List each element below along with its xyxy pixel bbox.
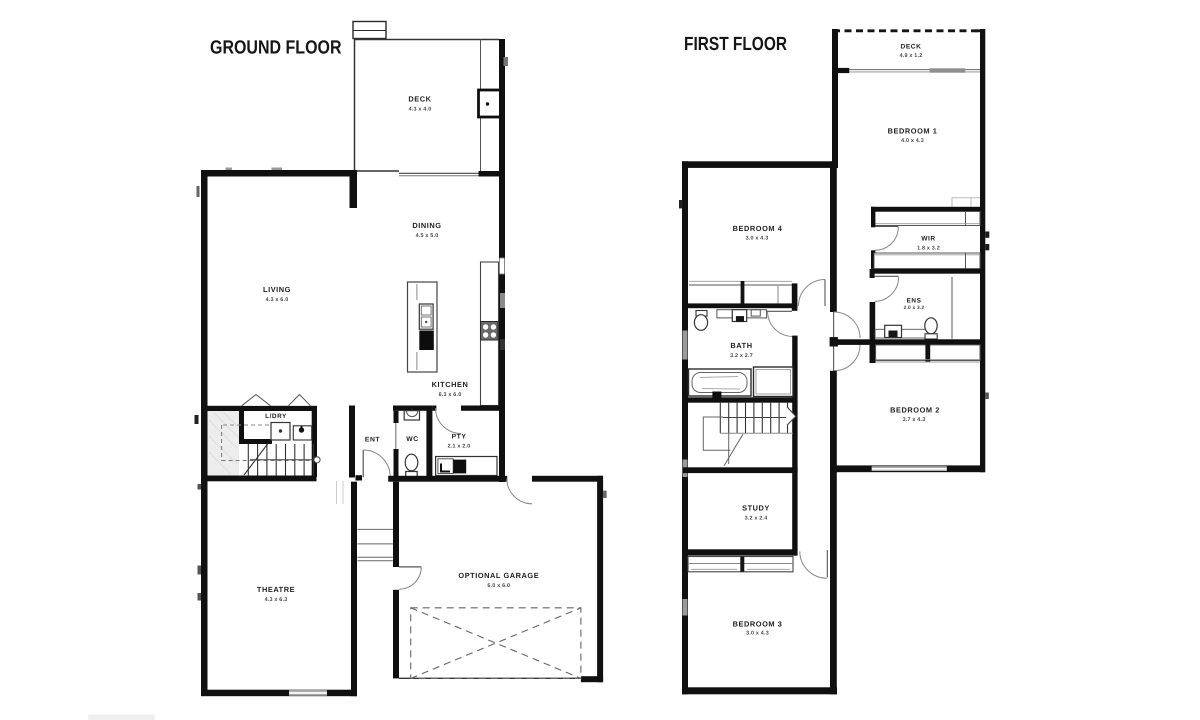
svg-text:4.5 x 5.0: 4.5 x 5.0 — [416, 233, 439, 239]
svg-text:WC: WC — [406, 436, 418, 443]
svg-text:1.8 x 3.2: 1.8 x 3.2 — [917, 246, 940, 252]
svg-text:GROUND FLOOR: GROUND FLOOR — [210, 38, 342, 59]
svg-text:3.2 x 2.4: 3.2 x 2.4 — [745, 516, 768, 522]
svg-text:2.0 x 3.2: 2.0 x 3.2 — [904, 305, 925, 311]
svg-text:PTY: PTY — [452, 434, 467, 441]
svg-text:4.0 x 4.3: 4.0 x 4.3 — [901, 138, 924, 144]
svg-text:BEDROOM 3: BEDROOM 3 — [733, 620, 783, 629]
svg-text:ENT: ENT — [365, 437, 381, 444]
svg-text:DECK: DECK — [901, 44, 922, 51]
svg-text:BEDROOM 4: BEDROOM 4 — [733, 224, 783, 233]
svg-text:3.0 x 4.3: 3.0 x 4.3 — [746, 236, 769, 242]
svg-text:4.3 x 6.3: 4.3 x 6.3 — [265, 597, 288, 603]
svg-text:L/DRY: L/DRY — [265, 413, 287, 420]
svg-text:3.2 x 2.7: 3.2 x 2.7 — [730, 353, 753, 359]
svg-text:2.1 x 2.0: 2.1 x 2.0 — [448, 444, 471, 450]
svg-text:OPTIONAL GARAGE: OPTIONAL GARAGE — [458, 571, 539, 580]
svg-text:4.9 x 1.2: 4.9 x 1.2 — [900, 53, 923, 59]
svg-text:BEDROOM 1: BEDROOM 1 — [888, 127, 938, 136]
svg-text:4.3 x 4.0: 4.3 x 4.0 — [409, 107, 432, 113]
svg-text:6.0 x 6.0: 6.0 x 6.0 — [487, 583, 510, 589]
svg-text:3.0 x 4.3: 3.0 x 4.3 — [746, 631, 769, 637]
svg-text:BATH: BATH — [730, 341, 752, 350]
svg-text:LIVING: LIVING — [263, 285, 291, 294]
svg-text:DINING: DINING — [412, 221, 441, 230]
svg-text:STUDY: STUDY — [742, 504, 770, 513]
svg-text:ENS: ENS — [907, 298, 922, 305]
svg-text:WIR: WIR — [921, 236, 935, 243]
svg-text:6.3 x 6.0: 6.3 x 6.0 — [439, 392, 462, 398]
svg-text:FIRST FLOOR: FIRST FLOOR — [684, 34, 787, 55]
svg-text:THEATRE: THEATRE — [257, 585, 295, 594]
svg-text:BEDROOM 2: BEDROOM 2 — [890, 406, 940, 415]
svg-text:DECK: DECK — [408, 95, 431, 104]
svg-text:KITCHEN: KITCHEN — [432, 380, 469, 389]
svg-text:4.3 x 6.0: 4.3 x 6.0 — [266, 297, 289, 303]
svg-text:3.7 x 4.3: 3.7 x 4.3 — [903, 417, 926, 423]
